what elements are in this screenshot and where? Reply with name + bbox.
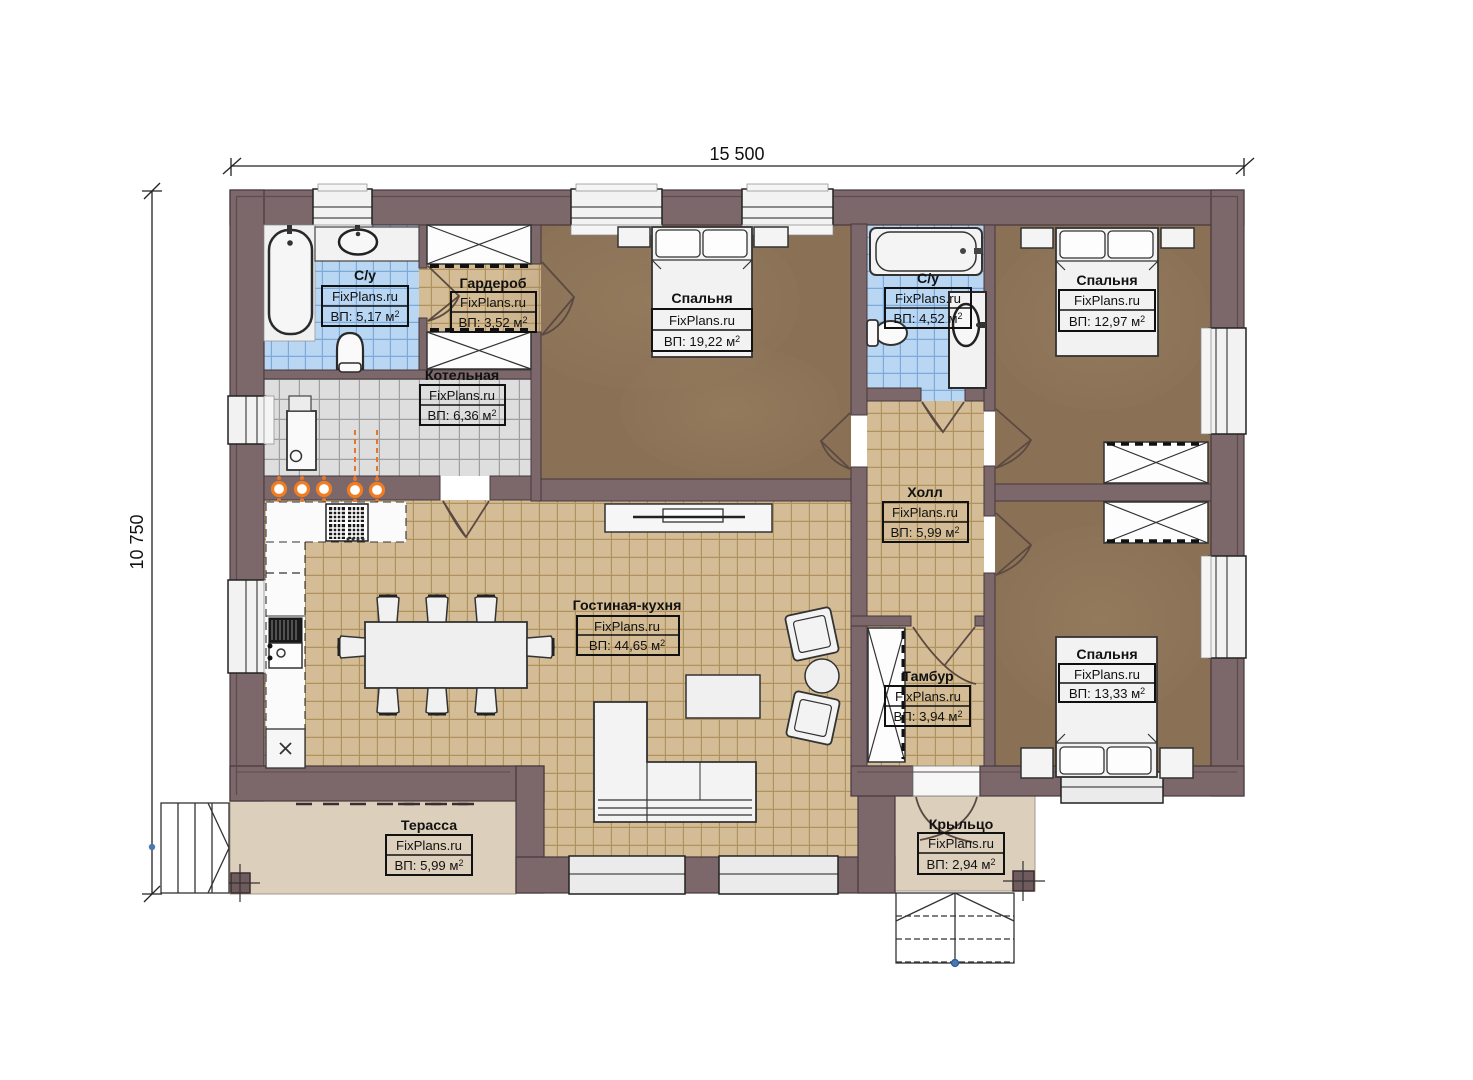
svg-text:ВП: 2,94 м2: ВП: 2,94 м2	[926, 857, 995, 872]
svg-text:Холл: Холл	[907, 485, 943, 501]
svg-text:FixPlans.ru: FixPlans.ru	[669, 313, 735, 328]
svg-text:FixPlans.ru: FixPlans.ru	[892, 505, 958, 520]
svg-text:FixPlans.ru: FixPlans.ru	[460, 295, 526, 310]
svg-text:С/у: С/у	[917, 271, 939, 287]
svg-text:Гостиная-кухня: Гостиная-кухня	[573, 598, 682, 614]
svg-text:ВП: 6,36 м2: ВП: 6,36 м2	[427, 408, 496, 423]
svg-text:15 500: 15 500	[709, 144, 764, 164]
svg-text:С/у: С/у	[354, 268, 376, 284]
svg-text:FixPlans.ru: FixPlans.ru	[1074, 667, 1140, 682]
svg-text:FixPlans.ru: FixPlans.ru	[928, 836, 994, 851]
svg-text:FixPlans.ru: FixPlans.ru	[429, 388, 495, 403]
svg-text:Спальня: Спальня	[1076, 647, 1137, 663]
svg-text:FixPlans.ru: FixPlans.ru	[396, 838, 462, 853]
svg-text:Котельная: Котельная	[425, 368, 499, 384]
svg-text:FixPlans.ru: FixPlans.ru	[1074, 293, 1140, 308]
svg-text:FixPlans.ru: FixPlans.ru	[594, 619, 660, 634]
svg-text:FixPlans.ru: FixPlans.ru	[895, 689, 961, 704]
svg-text:FixPlans.ru: FixPlans.ru	[895, 291, 961, 306]
svg-text:Спальня: Спальня	[1076, 273, 1137, 289]
svg-text:Спальня: Спальня	[671, 291, 732, 307]
svg-text:ВП: 19,22 м2: ВП: 19,22 м2	[664, 334, 740, 349]
svg-text:ВП: 13,33 м2: ВП: 13,33 м2	[1069, 686, 1145, 701]
svg-text:ВП: 44,65 м2: ВП: 44,65 м2	[589, 638, 665, 653]
svg-text:ВП: 5,99 м2: ВП: 5,99 м2	[394, 858, 463, 873]
svg-text:ВП: 4,52 м2: ВП: 4,52 м2	[893, 311, 962, 326]
svg-text:Тамбур: Тамбур	[902, 669, 954, 685]
svg-text:Терасса: Терасса	[401, 818, 457, 834]
svg-text:Гардероб: Гардероб	[459, 276, 526, 292]
svg-text:ВП: 3,94 м2: ВП: 3,94 м2	[893, 709, 962, 724]
svg-text:ВП: 5,17 м2: ВП: 5,17 м2	[330, 309, 399, 324]
svg-text:ВП: 3,52 м2: ВП: 3,52 м2	[458, 315, 527, 330]
svg-text:ВП: 12,97 м2: ВП: 12,97 м2	[1069, 314, 1145, 329]
svg-text:10 750: 10 750	[127, 514, 147, 569]
svg-text:Крыльцо: Крыльцо	[929, 817, 994, 833]
svg-text:ВП: 5,99 м2: ВП: 5,99 м2	[890, 525, 959, 540]
svg-text:FixPlans.ru: FixPlans.ru	[332, 289, 398, 304]
